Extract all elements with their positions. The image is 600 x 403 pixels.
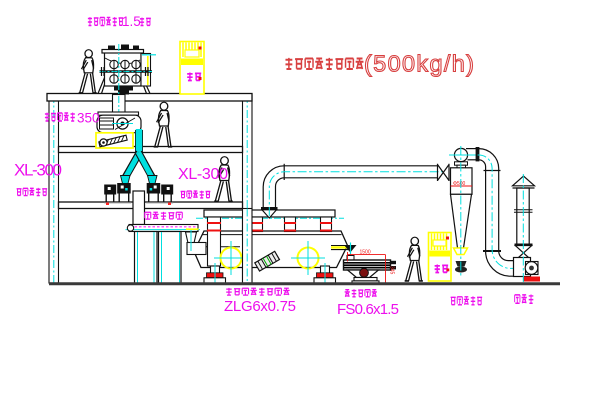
svg-text:345: 345 (389, 266, 395, 275)
svg-text:XL-300: XL-300 (178, 166, 228, 183)
svg-text:1.5: 1.5 (122, 14, 141, 29)
svg-text:350: 350 (77, 111, 100, 126)
svg-text:XL-300: XL-300 (14, 161, 62, 180)
svg-text:Φ500: Φ500 (453, 181, 466, 187)
svg-text:FS0.6x1.5: FS0.6x1.5 (337, 301, 399, 318)
svg-text:1500: 1500 (360, 249, 371, 255)
svg-text:(500kg/h): (500kg/h) (364, 51, 474, 77)
svg-text:ZLG6x0.75: ZLG6x0.75 (224, 298, 296, 315)
